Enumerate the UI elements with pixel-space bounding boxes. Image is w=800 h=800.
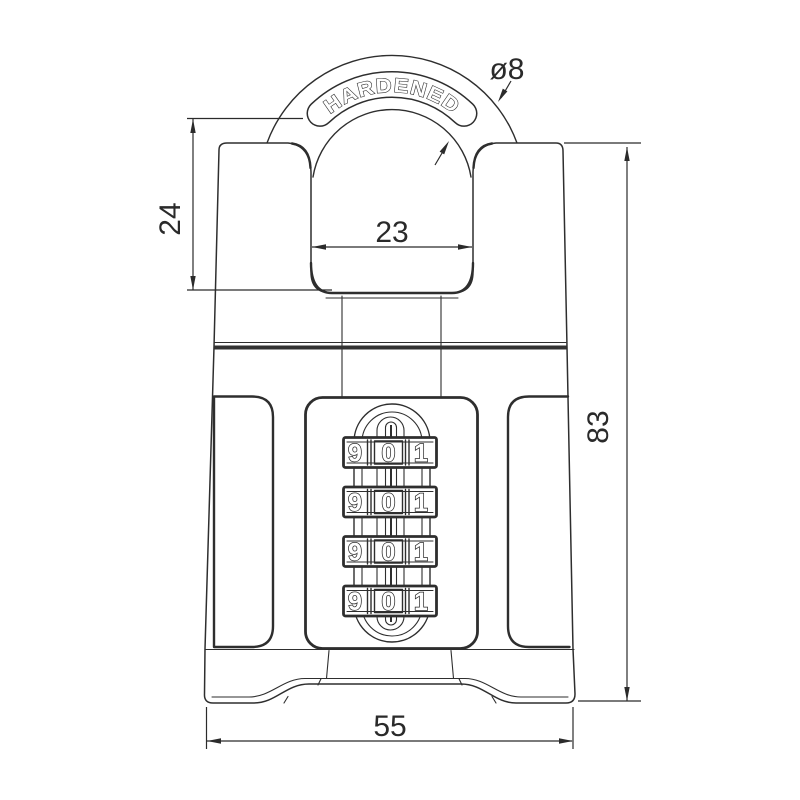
dial-digit: 0	[382, 489, 396, 517]
hardened-label: HARDENED	[320, 75, 464, 118]
padlock-technical-drawing: HARDENED 9 0 1 9 0	[0, 0, 800, 800]
dial-digit: 1	[414, 588, 428, 616]
dim-shackle-height-label: 24	[154, 202, 187, 235]
dim-arrow	[624, 687, 629, 701]
dial-row-1[interactable]: 9 0 1	[344, 438, 437, 468]
dim-shackle-diameter-label: ø8	[489, 53, 524, 86]
dial-digit: 0	[382, 588, 396, 616]
dim-shackle-inner-width-label: 23	[375, 216, 408, 249]
shackle-outer-arc	[267, 55, 517, 143]
dim-arrow	[207, 738, 221, 743]
dim-body-height-label: 83	[582, 410, 615, 443]
dial-digit: 9	[348, 539, 362, 567]
dim-body-width-label: 55	[373, 710, 406, 743]
dial-digit: 9	[348, 489, 362, 517]
dial-digit: 1	[414, 440, 428, 468]
dim-arrow	[498, 89, 507, 102]
dial-digit: 1	[414, 539, 428, 567]
dim-arrow	[440, 141, 449, 154]
dim-arrow	[312, 244, 326, 249]
dim-arrow	[190, 276, 195, 290]
dial-row-2[interactable]: 9 0 1	[344, 487, 437, 517]
dial-digit: 1	[414, 489, 428, 517]
dim-shackle-inner-width: 23	[312, 216, 472, 250]
dial-digit: 9	[348, 440, 362, 468]
dial-row-3[interactable]: 9 0 1	[344, 537, 437, 567]
dial-digit: 0	[382, 440, 396, 468]
dial-row-4[interactable]: 9 0 1	[344, 586, 437, 616]
dial-digit: 9	[348, 588, 362, 616]
shackle-slot-bottom-edge	[311, 263, 473, 293]
padlock-drawing-canvas: HARDENED 9 0 1 9 0	[0, 0, 800, 800]
dim-arrow	[458, 244, 472, 249]
dim-arrow	[190, 119, 195, 133]
dim-arrow	[624, 147, 629, 161]
dim-body-height: 83	[564, 143, 641, 701]
dial-digit: 0	[382, 539, 396, 567]
dim-arrow	[559, 738, 573, 743]
dim-body-width: 55	[207, 707, 574, 749]
